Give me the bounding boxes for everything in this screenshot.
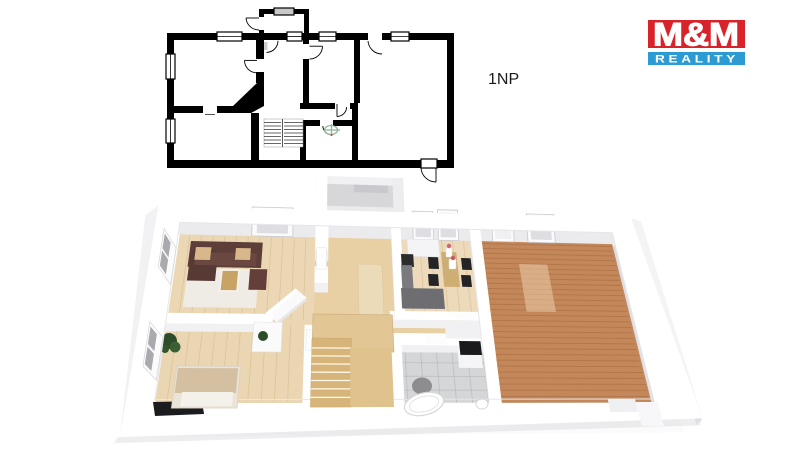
- svg-text:REALITY: REALITY: [655, 54, 739, 66]
- svg-text:M&M: M&M: [653, 17, 739, 53]
- svg-text:1NP: 1NP: [488, 71, 519, 88]
